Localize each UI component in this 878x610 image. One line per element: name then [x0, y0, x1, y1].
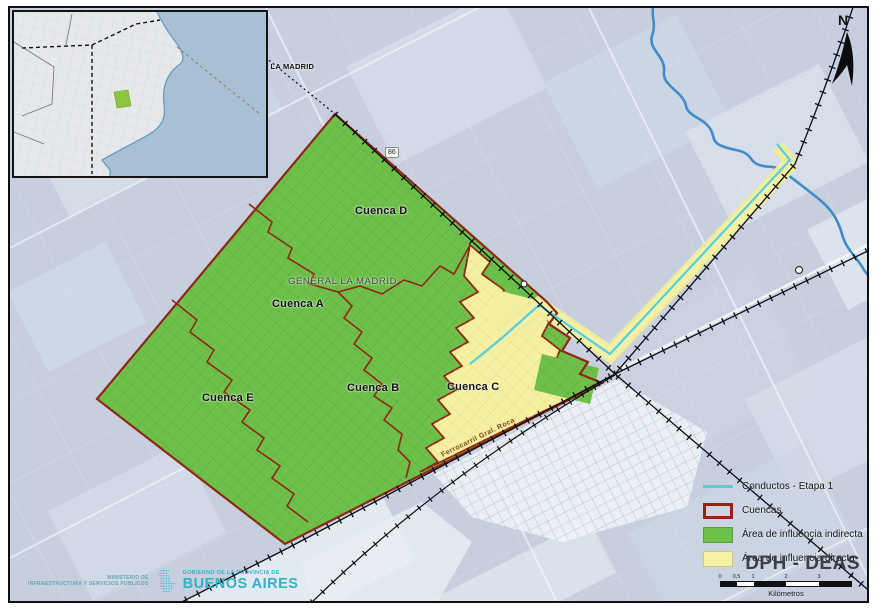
ministry-line2: INFRAESTRUCTURA Y SERVICIOS PÚBLICOS: [28, 581, 149, 587]
label-cuenca-e: Cuenca E: [202, 392, 254, 404]
gov-text: GOBIERNO DE LA PROVINCIA DE BUENOS AIRES: [183, 571, 299, 591]
cuencas-outline-swatch: [703, 503, 733, 519]
agency-title: DPH - DEAS: [714, 553, 862, 574]
label-cuenca-b: Cuenca B: [347, 382, 399, 394]
ministry-text: MINISTERIO DE INFRAESTRUCTURA Y SERVICIO…: [28, 575, 149, 587]
legend-label: Área de influencia indirecta: [742, 529, 863, 540]
map-page: AL LA MADRID 86 Cuenca D GENERAL LA MADR…: [0, 0, 878, 610]
inset-partido-highlight: [114, 90, 131, 108]
credits-block: DPH - DEAS 0 0,5 1 2 3 4 Kilómetros: [714, 553, 862, 598]
scalebar: [720, 581, 852, 587]
scale-tick: 0,5: [733, 574, 741, 580]
scalebar-ticks: 0 0,5 1 2 3 4: [720, 574, 852, 581]
scale-tick: 2: [784, 574, 787, 580]
scale-tick: 3: [817, 574, 820, 580]
label-general-la-madrid: GENERAL LA MADRID: [288, 276, 397, 287]
legend-label: Conductos - Etapa 1: [742, 481, 833, 492]
map-art: AL LA MADRID 86 Cuenca D GENERAL LA MADR…: [8, 6, 869, 603]
station-marker: [796, 267, 803, 274]
scalebar-segment: [819, 582, 852, 586]
gov-line2: BUENOS AIRES: [183, 577, 299, 592]
scale-tick: 0: [718, 574, 721, 580]
scale-tick: 1: [751, 574, 754, 580]
province-silhouette-icon: [155, 567, 177, 595]
government-logo: MINISTERIO DE INFRAESTRUCTURA Y SERVICIO…: [28, 567, 298, 595]
north-label: N: [838, 12, 848, 28]
label-cuenca-a: Cuenca A: [272, 298, 324, 310]
scalebar-segment: [721, 582, 737, 586]
legend-item-indirecta: Área de influencia indirecta: [703, 526, 863, 543]
legend-item-conductos: Conductos - Etapa 1: [703, 478, 863, 495]
scalebar-unit: Kilómetros: [720, 589, 852, 598]
label-cuenca-d: Cuenca D: [355, 205, 407, 217]
route-86-shield: 86: [385, 147, 399, 158]
scalebar-segment: [737, 582, 753, 586]
inset-graphics: [14, 12, 266, 176]
legend-label: Cuencas: [742, 505, 781, 516]
station-marker: [521, 281, 527, 287]
scalebar-segment: [754, 582, 787, 586]
conduit-line-swatch: [703, 485, 733, 488]
legend-item-cuencas: Cuencas: [703, 502, 863, 519]
scalebar-segment: [786, 582, 819, 586]
inset-locator-map: [12, 10, 268, 178]
label-cuenca-c: Cuenca C: [447, 381, 499, 393]
green-fill-swatch: [703, 527, 733, 543]
scale-tick: 4: [850, 574, 853, 580]
map-canvas: AL LA MADRID 86 Cuenca D GENERAL LA MADR…: [8, 6, 869, 603]
